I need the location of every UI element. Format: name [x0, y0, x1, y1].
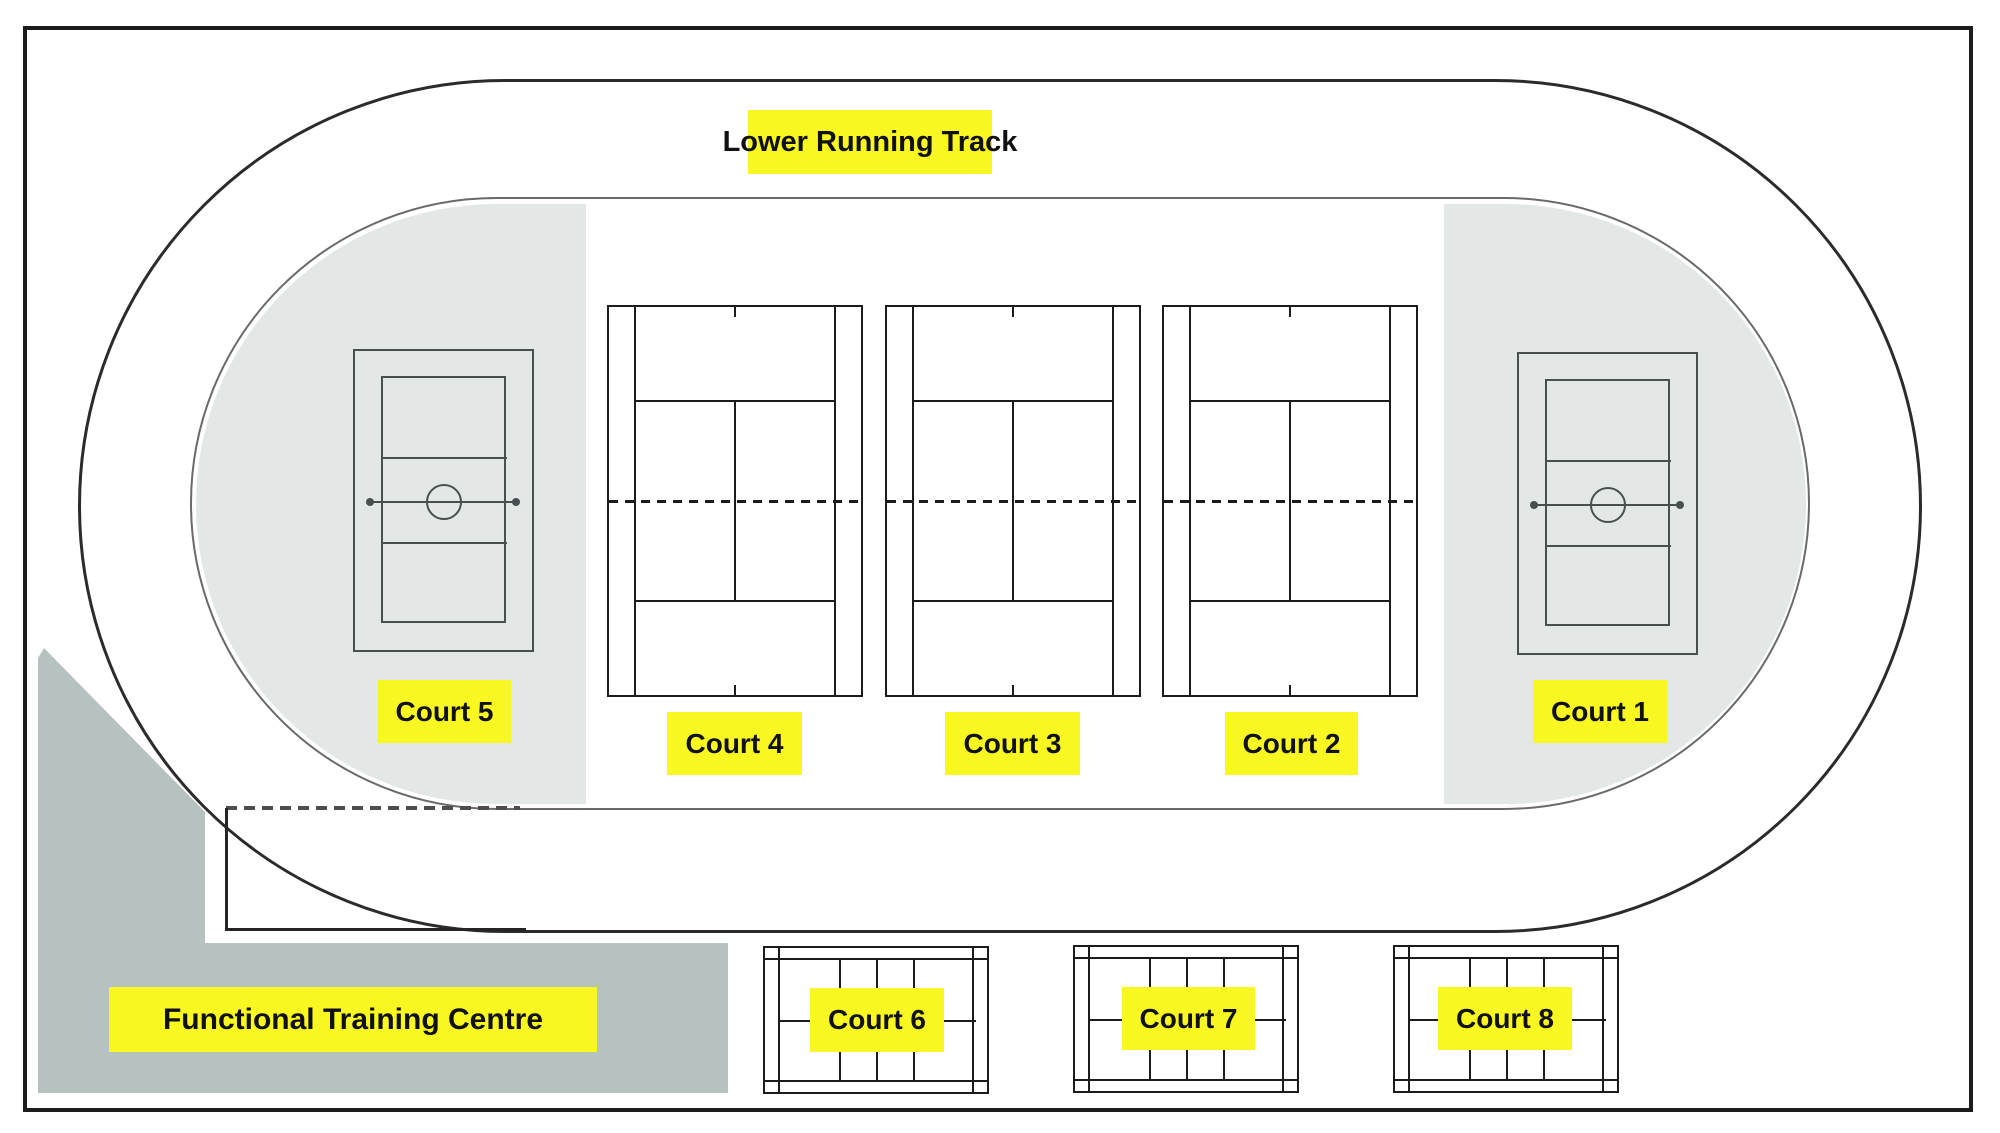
- facility-map: Lower Running Track Court 5 Court 4 Cour…: [0, 0, 2000, 1133]
- page-border: [23, 26, 1973, 1112]
